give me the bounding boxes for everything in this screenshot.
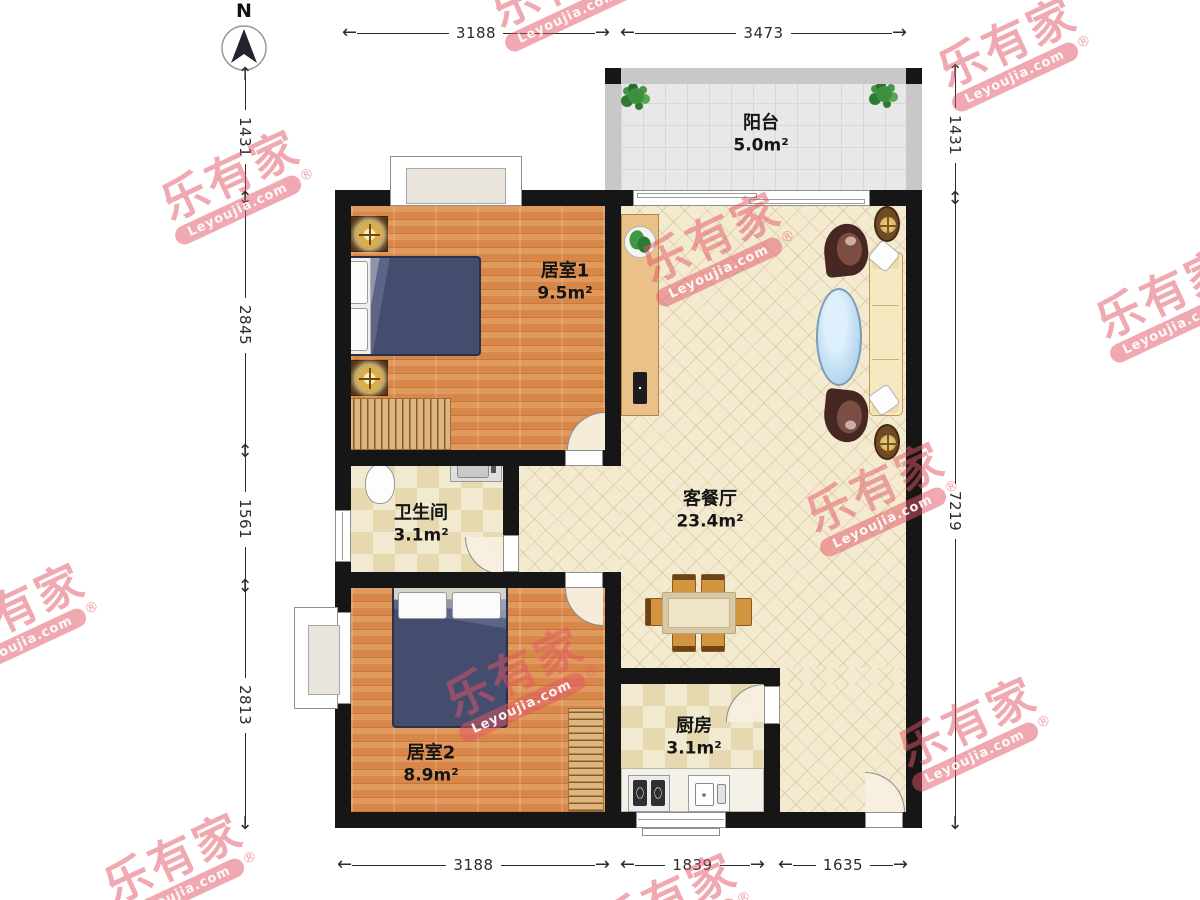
tv bbox=[633, 372, 647, 404]
room-area: 5.0m² bbox=[733, 135, 788, 157]
room-label-bedroom1: 居室1 9.5m² bbox=[537, 259, 592, 304]
room-label-bathroom: 卫生间 3.1m² bbox=[393, 501, 448, 546]
room-label-bedroom2: 居室2 8.9m² bbox=[403, 741, 458, 786]
dimension-value: 3473 bbox=[736, 24, 790, 42]
watermark: 乐有家Leyoujia.com® bbox=[1087, 240, 1200, 365]
window-inner bbox=[406, 168, 506, 204]
room-area: 3.1m² bbox=[666, 738, 721, 760]
burner-icon bbox=[651, 780, 665, 806]
door bbox=[764, 686, 780, 724]
sliding-door bbox=[633, 190, 870, 206]
wall-corner bbox=[906, 68, 922, 84]
room-name: 客餐厅 bbox=[683, 487, 737, 510]
dimension-value: 1635 bbox=[816, 856, 870, 874]
dimension-value: 1839 bbox=[665, 856, 719, 874]
living-floor-corridor bbox=[519, 466, 621, 572]
room-name: 居室1 bbox=[541, 259, 590, 282]
potted-plant-icon bbox=[624, 226, 656, 258]
kitchen-counter bbox=[621, 768, 764, 812]
lamp-icon bbox=[356, 221, 383, 248]
dimension-top-1: ← 3188 → bbox=[342, 24, 610, 42]
dimension-top-2: ← 3473 → bbox=[620, 24, 907, 42]
nightstand bbox=[350, 216, 388, 252]
room-name: 阳台 bbox=[743, 111, 779, 134]
dimension-value: 2813 bbox=[236, 678, 254, 732]
wall bbox=[605, 190, 621, 466]
compass-north-label: N bbox=[216, 0, 272, 22]
wall bbox=[503, 450, 519, 535]
wall bbox=[335, 572, 565, 588]
round-stool bbox=[874, 206, 900, 242]
room-label-balcony: 阳台 5.0m² bbox=[733, 111, 788, 156]
window bbox=[335, 510, 351, 562]
pillow bbox=[398, 592, 447, 619]
wardrobe bbox=[345, 398, 451, 450]
kitchen-sink bbox=[688, 775, 730, 812]
wall bbox=[906, 190, 922, 828]
wall bbox=[335, 190, 351, 828]
floorplan-canvas: 阳台 5.0m² 居室1 9.5m² 客餐厅 23.4m² 卫生间 3.1m² … bbox=[0, 0, 1200, 900]
room-label-living: 客餐厅 23.4m² bbox=[676, 487, 743, 532]
plant-icon bbox=[876, 86, 892, 102]
wall bbox=[605, 572, 621, 828]
entry-door bbox=[865, 812, 903, 828]
balcony-wall bbox=[906, 84, 922, 192]
wall bbox=[603, 450, 621, 466]
sink-basin bbox=[695, 783, 714, 806]
room-name: 卫生间 bbox=[394, 501, 448, 524]
balcony-wall bbox=[605, 68, 922, 84]
wall bbox=[335, 812, 922, 828]
window-glazing bbox=[342, 512, 343, 560]
room-area: 9.5m² bbox=[537, 283, 592, 305]
dimension-right-2: ↑ 7219 ↓ bbox=[942, 199, 968, 824]
room-name: 厨房 bbox=[676, 714, 712, 737]
coffee-table bbox=[816, 288, 862, 386]
wall bbox=[764, 724, 780, 828]
door bbox=[565, 572, 603, 588]
dimension-right-1: ↑ 1431 ↓ bbox=[942, 72, 968, 199]
dimension-value: 3188 bbox=[446, 856, 500, 874]
wall bbox=[605, 668, 780, 684]
wardrobe bbox=[568, 708, 604, 812]
round-stool bbox=[874, 424, 900, 460]
wall bbox=[335, 450, 565, 466]
dimension-value: 2845 bbox=[236, 298, 254, 352]
door bbox=[565, 450, 603, 466]
living-floor-entry-strip bbox=[780, 668, 906, 684]
room-name: 居室2 bbox=[407, 741, 456, 764]
room-area: 8.9m² bbox=[403, 765, 458, 787]
sliding-door-panel bbox=[637, 193, 757, 198]
dimension-value: 1431 bbox=[236, 110, 254, 164]
wall bbox=[764, 668, 780, 686]
double-bed bbox=[343, 256, 481, 356]
lamp-icon bbox=[356, 365, 383, 392]
dimension-left-2: ↑ 2845 ↓ bbox=[232, 199, 258, 452]
balcony-wall bbox=[605, 84, 621, 192]
nightstand bbox=[350, 360, 388, 396]
dimension-value: 3188 bbox=[449, 24, 503, 42]
sliding-door-panel bbox=[749, 199, 865, 204]
double-bed bbox=[392, 586, 508, 728]
dimension-left-1: ↑ 1431 ↓ bbox=[232, 75, 258, 199]
stove bbox=[628, 775, 670, 812]
dimension-value: 1561 bbox=[236, 492, 254, 546]
dining-table bbox=[662, 592, 736, 634]
door bbox=[503, 535, 519, 572]
room-area: 3.1m² bbox=[393, 525, 448, 547]
window-glazing bbox=[638, 819, 724, 820]
dimension-bottom-2: ← 1839 → bbox=[620, 856, 765, 874]
wall-corner bbox=[605, 68, 621, 84]
window-sill bbox=[642, 828, 720, 836]
toilet-bowl bbox=[365, 464, 395, 504]
watermark: 乐有家Leyoujia.com® bbox=[0, 555, 103, 680]
plant-icon bbox=[628, 88, 644, 104]
room-area: 23.4m² bbox=[676, 511, 743, 533]
window bbox=[636, 812, 726, 828]
pillow bbox=[452, 592, 501, 619]
window-inner bbox=[308, 625, 340, 695]
dimension-bottom-3: ← 1635 → bbox=[778, 856, 908, 874]
dimension-value: 1431 bbox=[946, 108, 964, 162]
dimension-left-4: ↑ 2813 ↓ bbox=[232, 587, 258, 824]
burner-icon bbox=[633, 780, 647, 806]
dimension-bottom-1: ← 3188 → bbox=[337, 856, 610, 874]
dimension-value: 7219 bbox=[946, 484, 964, 538]
room-label-kitchen: 厨房 3.1m² bbox=[666, 714, 721, 759]
faucet-icon bbox=[717, 784, 726, 804]
dimension-left-3: ↑ 1561 ↓ bbox=[232, 452, 258, 587]
